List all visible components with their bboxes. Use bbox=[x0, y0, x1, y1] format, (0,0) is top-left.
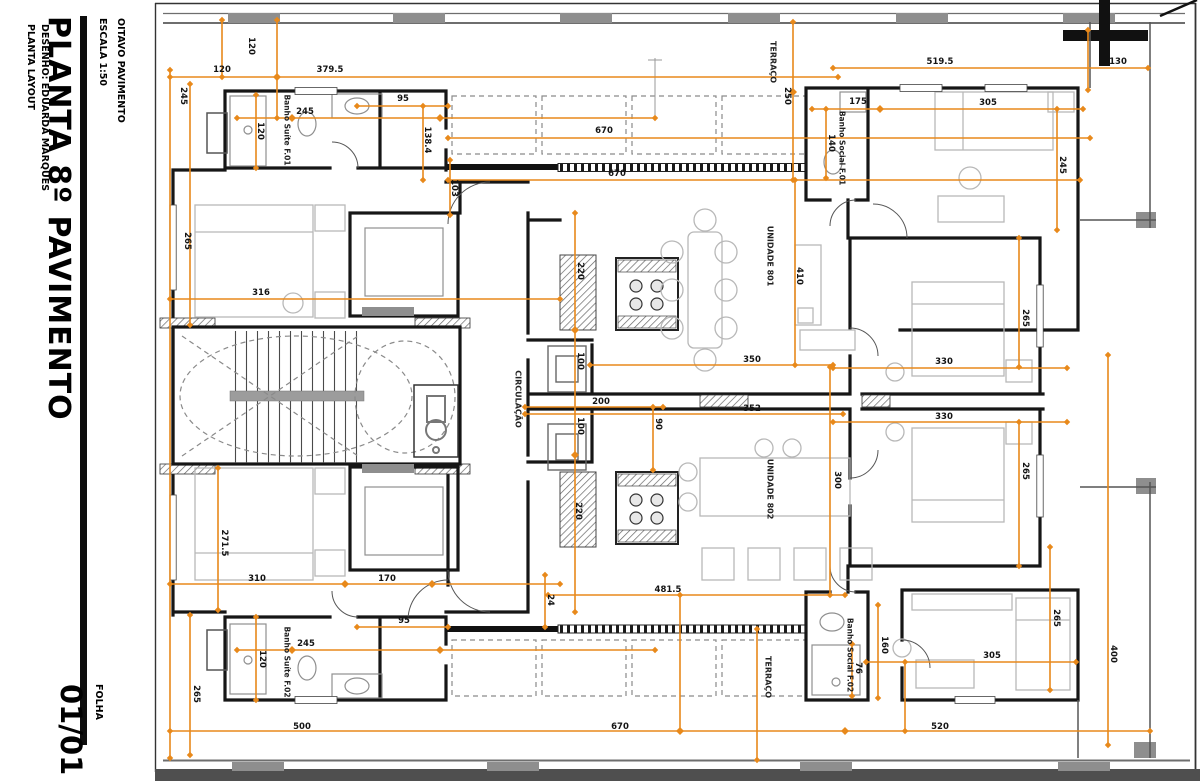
title-divider bbox=[80, 16, 87, 745]
door-swings bbox=[332, 142, 930, 668]
sheet-number: 01/01 bbox=[54, 684, 88, 775]
scale-label: ESCALA 1:50 bbox=[97, 18, 108, 86]
terrace-north bbox=[446, 58, 806, 172]
kitchen-north bbox=[548, 255, 678, 392]
kitchen-south bbox=[548, 424, 678, 547]
stove-burners bbox=[630, 280, 663, 310]
stair-core bbox=[160, 318, 470, 474]
elevators bbox=[350, 213, 458, 570]
project-name: OITAVO PAVIMENTO bbox=[115, 18, 126, 123]
blueprint-sheet: .wall{stroke:#161616;stroke-width:3.2;fi… bbox=[0, 0, 1200, 781]
layout-label: PLANTA LAYOUT bbox=[25, 24, 36, 110]
terrace-south bbox=[446, 625, 806, 696]
stove-burners bbox=[630, 494, 663, 524]
author-label: DESENHO: EDUARDA MARQUES bbox=[39, 24, 50, 191]
sheet-label: FOLHA bbox=[93, 684, 104, 720]
wheelchair-icon bbox=[426, 396, 446, 453]
north-cross bbox=[1063, 0, 1197, 66]
boundary-columns bbox=[228, 13, 1156, 771]
floor-plan-drawing: .wall{stroke:#161616;stroke-width:3.2;fi… bbox=[0, 0, 1200, 781]
wall-hatches bbox=[700, 395, 890, 407]
